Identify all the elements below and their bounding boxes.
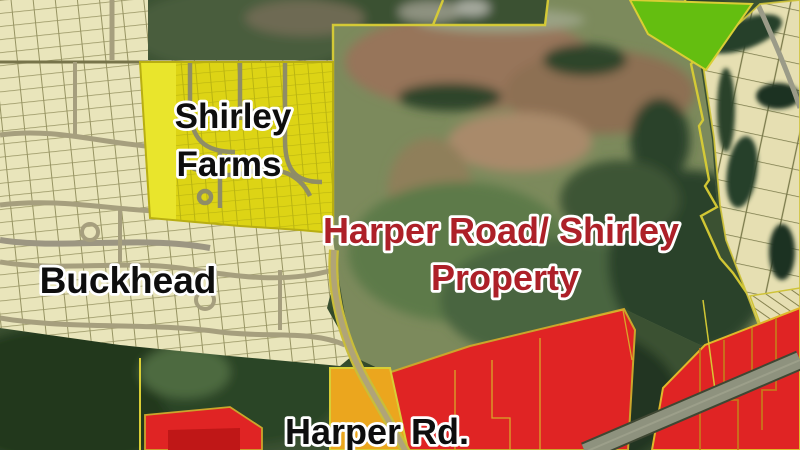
map-graphic: Shirley Farms Buckhead Harper Road/ Shir… — [0, 0, 800, 450]
bottom-left-red-inner — [168, 428, 240, 450]
shirley-farms-label-line1: Shirley — [175, 97, 292, 136]
property-label-line1: Harper Road/ Shirley — [323, 210, 679, 251]
property-label-line2: Property — [431, 257, 579, 298]
buckhead-label: Buckhead — [40, 260, 217, 301]
shirley-farms-label-line2: Farms — [176, 145, 281, 184]
harper-rd-label: Harper Rd. — [285, 411, 469, 450]
